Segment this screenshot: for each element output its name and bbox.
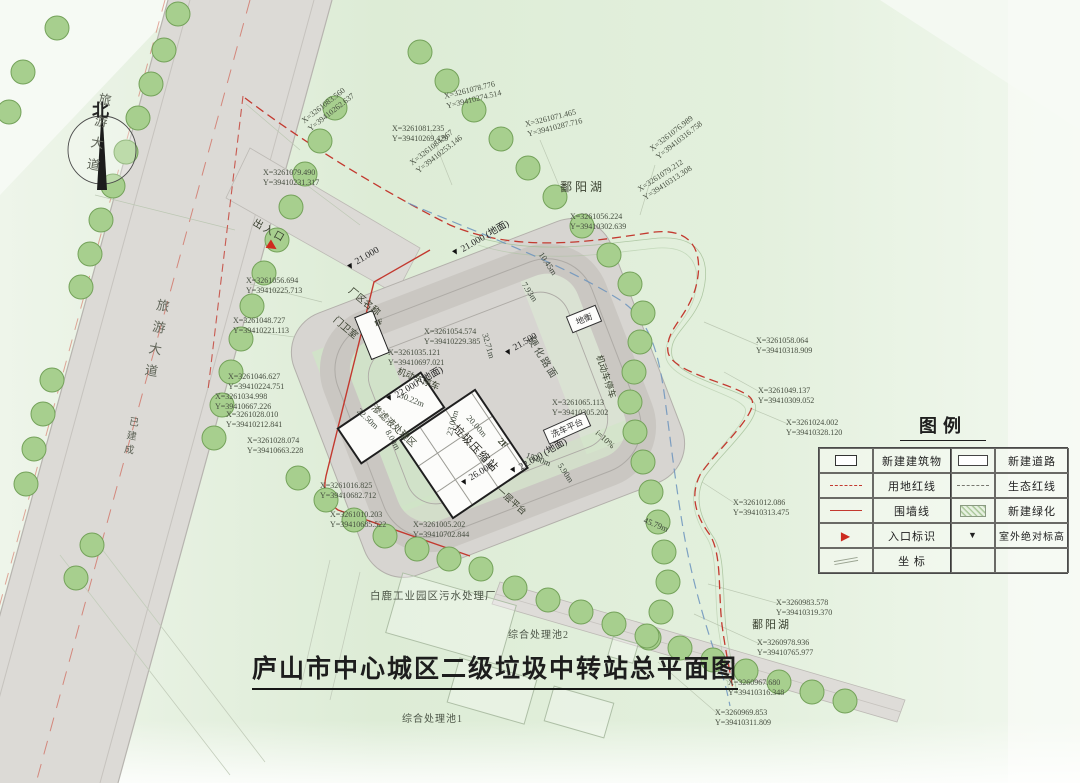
coordinate-x: X=3261028.010 <box>226 410 278 419</box>
legend-label-empty <box>995 548 1069 573</box>
legend-label-elevation-mark: 室外绝对标高 <box>995 523 1069 548</box>
elevation-mark-icon: ▼ <box>968 531 978 540</box>
coordinate-label: X=3261054.574Y=39410229.385 <box>424 327 480 348</box>
legend-symbol-empty <box>951 548 995 573</box>
legend-symbol-new-greening <box>951 498 995 523</box>
coordinate-x: X=3261049.137 <box>758 386 810 395</box>
sewage-plant-label: 白鹿工业园区污水处理厂 <box>370 588 497 603</box>
coordinate-label: X=3261028.010Y=39410212.841 <box>226 410 282 431</box>
coordinate-x: X=3261046.627 <box>228 372 280 381</box>
coordinate-y: Y=39410305.202 <box>552 408 608 417</box>
coordinate-label: X=3261046.627Y=39410224.751 <box>228 372 284 393</box>
road-name-mid: 旅游大道 <box>139 297 173 387</box>
dimension-label: 5.90m <box>556 461 576 484</box>
coordinate-y: Y=39410318.909 <box>756 346 812 355</box>
coordinate-y: Y=39410685.522 <box>330 520 386 529</box>
coordinate-x: X=3261048.727 <box>233 316 285 325</box>
coordinate-label: X=3261058.064Y=39410318.909 <box>756 336 812 357</box>
coordinate-label: X=3261071.465Y=39410287.716 <box>524 106 584 140</box>
coordinate-x: X=3261034.998 <box>215 392 267 401</box>
coordinate-x: X=3261016.825 <box>320 481 372 490</box>
legend: 图例 新建建筑物 新建道路 用地红线 生态红线 围墙线 新建绿化 ▶ 入口标识 … <box>818 412 1068 574</box>
coordinate-x: X=3261058.064 <box>756 336 808 345</box>
coordinate-label: X=3261078.776Y=39410274.514 <box>443 78 503 112</box>
coordinate-y: Y=39410319.370 <box>776 608 832 617</box>
labels-overlay: 北 旅游大道 旅游大道 已建成 出入口 ▶ 鄱阳湖 鄱阳湖 1F 厂区名称 门卫… <box>0 0 1080 783</box>
elevation-mark: ▼21.000 (地面) <box>448 216 511 260</box>
legend-symbol-wall-line <box>819 498 873 523</box>
coordinate-x: X=3261056.224 <box>570 212 622 221</box>
coordinate-y: Y=39410309.052 <box>758 396 814 405</box>
coordinate-x: X=3261065.113 <box>552 398 604 407</box>
coordinate-label: X=3261079.212Y=39410313.308 <box>636 155 695 203</box>
coordinate-x: X=3261054.574 <box>424 327 476 336</box>
legend-title: 图例 <box>900 412 986 441</box>
gatehouse-building <box>354 310 390 360</box>
legend-label-land-redline: 用地红线 <box>873 473 951 498</box>
coordinate-y: Y=39410229.385 <box>424 337 480 346</box>
coordinate-label: X=3261079.490Y=39410231.317 <box>263 168 319 189</box>
coordinate-y: Y=39410224.751 <box>228 382 284 391</box>
legend-symbol-entrance-mark: ▶ <box>819 523 873 548</box>
coordinate-y: Y=39410225.713 <box>246 286 302 295</box>
coordinate-x: X=3261010.203 <box>330 510 382 519</box>
coordinate-y: Y=39410212.841 <box>226 420 282 429</box>
legend-label-eco-redline: 生态红线 <box>995 473 1069 498</box>
road-built-note: 已建成 <box>118 415 140 459</box>
coordinate-x: X=3261035.121 <box>388 348 440 357</box>
coordinate-label: X=3261016.825Y=39410682.712 <box>320 481 376 502</box>
north-label: 北 <box>92 96 109 121</box>
dimension-label: 45.79m <box>642 515 670 534</box>
site-plan-drawing: 北 旅游大道 旅游大道 已建成 出入口 ▶ 鄱阳湖 鄱阳湖 1F 厂区名称 门卫… <box>0 0 1080 783</box>
coordinate-label: X=3261012.086Y=39410313.475 <box>733 498 789 519</box>
legend-label-wall-line: 围墙线 <box>873 498 951 523</box>
page-title: 庐山市中心城区二级垃圾中转站总平面图 <box>252 649 738 690</box>
legend-table: 新建建筑物 新建道路 用地红线 生态红线 围墙线 新建绿化 ▶ 入口标识 ▼ 室… <box>818 447 1068 574</box>
coordinate-y: Y=39410663.228 <box>247 446 303 455</box>
coordinate-label: X=3260978.936Y=39410765.977 <box>757 638 813 659</box>
legend-label-entrance-mark: 入口标识 <box>873 523 951 548</box>
coordinate-x: X=3261028.074 <box>247 436 299 445</box>
coordinate-x: X=3261081.235 <box>392 124 444 133</box>
coordinate-label: X=3261005.202Y=39410702.844 <box>413 520 469 541</box>
weighbridge-label: 地衡 <box>574 310 594 328</box>
elevation-mark: ▼21.000 <box>344 245 381 272</box>
coordinate-y: Y=39410311.809 <box>715 718 771 727</box>
entrance-arrow-icon: ▶ <box>265 237 280 253</box>
coordinate-x: X=3261005.202 <box>413 520 465 529</box>
coordinate-label: X=3261056.224Y=39410302.639 <box>570 212 626 233</box>
coordinate-x: X=3260969.853 <box>715 708 767 717</box>
coordinate-label: X=3261083.560Y=39410262.637 <box>300 83 357 134</box>
platform-first-label: 一层平台 <box>494 484 529 518</box>
legend-symbol-elevation-mark: ▼ <box>951 523 995 548</box>
pool2-label: 综合处理池2 <box>508 626 569 641</box>
weighbridge-box: 地衡 <box>566 305 602 334</box>
legend-symbol-new-road <box>951 448 995 473</box>
legend-symbol-eco-redline <box>951 473 995 498</box>
coordinate-label: X=3260969.853Y=39410311.809 <box>715 708 771 729</box>
legend-symbol-land-redline <box>819 473 873 498</box>
legend-label-coordinate: 坐 标 <box>873 548 951 573</box>
slope-label: i=10% <box>594 428 618 451</box>
coordinate-label: X=3261010.203Y=39410685.522 <box>330 510 386 531</box>
coordinate-y: Y=39410702.844 <box>413 530 469 539</box>
coordinate-y: Y=39410765.977 <box>757 648 813 657</box>
coordinate-y: Y=39410302.639 <box>570 222 626 231</box>
coordinate-label: X=3261028.074Y=39410663.228 <box>247 436 303 457</box>
coordinate-y: Y=39410221.113 <box>233 326 289 335</box>
coordinate-y: Y=39410682.712 <box>320 491 376 500</box>
legend-symbol-new-building <box>819 448 873 473</box>
elevation-value: 21.000 <box>353 245 381 267</box>
coordinate-label: X=3261056.694Y=39410225.713 <box>246 276 302 297</box>
coordinate-x: X=3260983.578 <box>776 598 828 607</box>
coordinate-label: X=3261065.113Y=39410305.202 <box>552 398 608 419</box>
coordinate-x: X=3260978.936 <box>757 638 809 647</box>
coordinate-x: X=3261079.490 <box>263 168 315 177</box>
coordinate-label: X=3261049.137Y=39410309.052 <box>758 386 814 407</box>
lake-label-top: 鄱阳湖 <box>560 178 605 195</box>
coordinate-x: X=3261012.086 <box>733 498 785 507</box>
legend-symbol-coordinate <box>819 548 873 573</box>
dimension-label: 10.45m <box>537 250 560 277</box>
entrance-mark-icon: ▶ <box>841 530 851 542</box>
coordinate-x: X=3261056.694 <box>246 276 298 285</box>
coordinate-label: X=3261048.727Y=39410221.113 <box>233 316 289 337</box>
elevation-value: 21.000 (地面) <box>457 216 511 255</box>
legend-label-new-road: 新建道路 <box>995 448 1069 473</box>
pool1-label: 综合处理池1 <box>402 710 463 725</box>
dimension-label: 32.71m <box>480 332 497 360</box>
coordinate-y: Y=39410231.317 <box>263 178 319 187</box>
legend-label-new-greening: 新建绿化 <box>995 498 1069 523</box>
legend-label-new-building: 新建建筑物 <box>873 448 951 473</box>
dimension-label: 7.93m <box>520 280 540 303</box>
parking-right-label: 机动车停车 <box>593 353 619 400</box>
coordinate-y: Y=39410313.475 <box>733 508 789 517</box>
coordinate-label: X=3261076.989Y=39410316.758 <box>648 111 705 162</box>
coordinate-label: X=3260983.578Y=39410319.370 <box>776 598 832 619</box>
